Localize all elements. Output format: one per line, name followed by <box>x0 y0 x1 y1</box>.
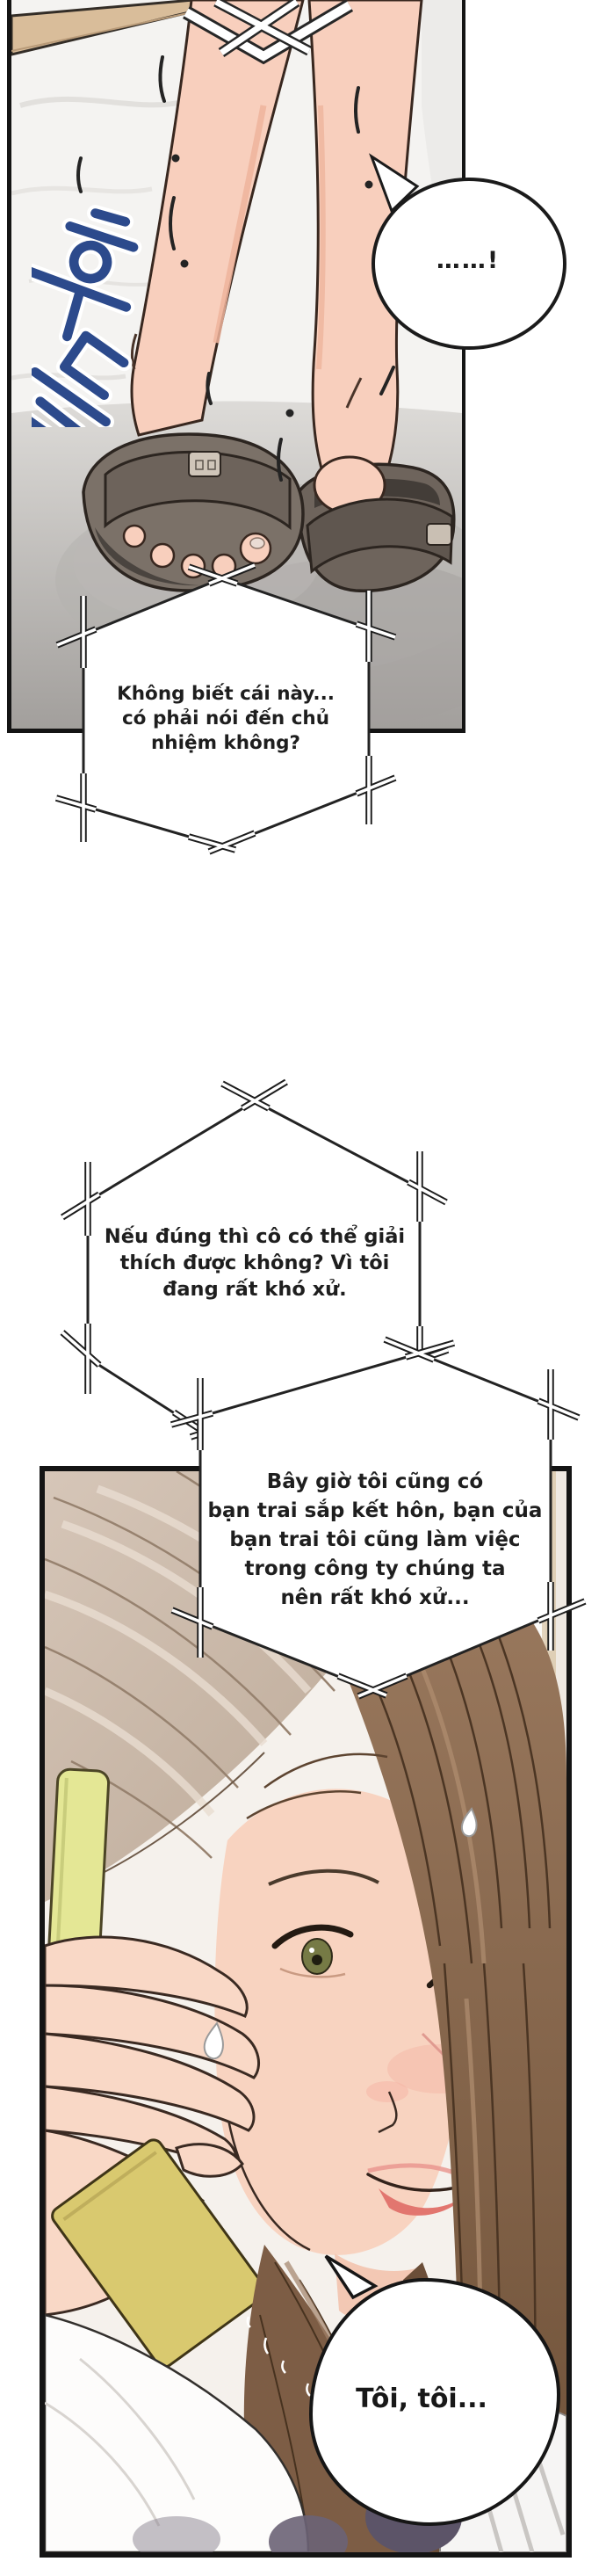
panel-top <box>7 0 465 733</box>
right-slipper <box>299 457 454 591</box>
comic-page: 후들 후들 <box>0 0 606 2576</box>
caption-text-1: Không biết cái này... có phải nói đến ch… <box>90 682 362 756</box>
exclaim-text: ……! <box>380 247 556 274</box>
caption-text-2: Nếu đúng thì cô có thể giải thích được k… <box>92 1223 417 1303</box>
caption-text-3: Bây giờ tôi cũng có bạn trai sắp kết hôn… <box>189 1468 561 1613</box>
toi-text: Tôi, tôi... <box>327 2384 516 2414</box>
left-slipper <box>83 434 303 591</box>
panel-top-art <box>11 0 462 729</box>
